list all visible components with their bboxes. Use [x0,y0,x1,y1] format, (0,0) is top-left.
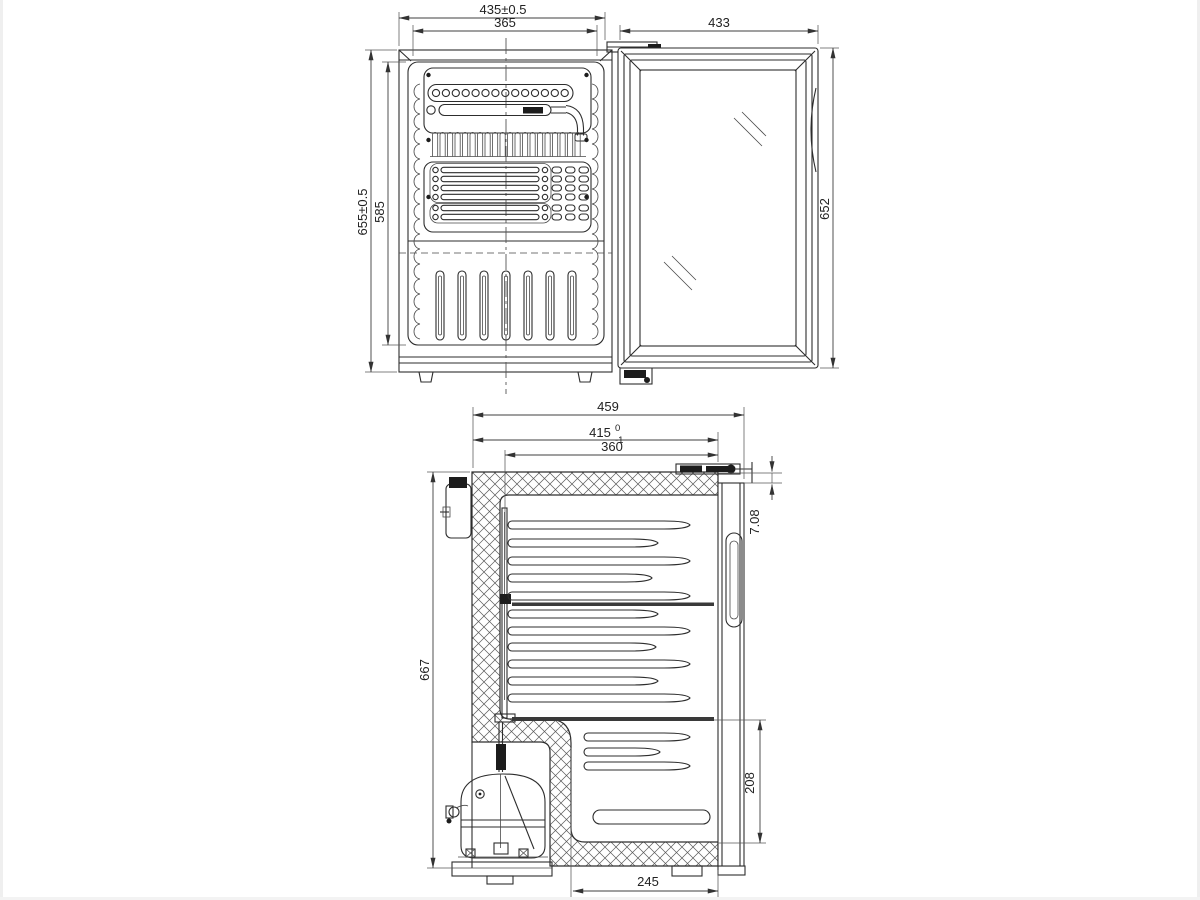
dim-lower-compartment-height: 208 [742,772,757,794]
side-section-group: 459 415 0 -1 360 667 7.08 208 245 [417,399,782,898]
rear-bottom-foot [672,866,702,876]
thermostat-box [440,477,471,538]
dim-rear-panel-width: 365 [494,15,516,30]
filter-dryer [496,744,506,770]
drawing-page: 435±0.5 365 433 655±0.5 585 652 [0,0,1200,900]
door-front-view [618,48,818,368]
rear-view-group: 435±0.5 365 433 655±0.5 585 652 [355,2,839,394]
page-edge-left [0,0,3,900]
rear-feet [419,372,592,382]
compressor [446,774,548,858]
insulation-section [472,472,718,866]
interior-fins [508,521,714,824]
dim-door-top-gap: 7.08 [747,509,762,534]
technical-drawing: 435±0.5 365 433 655±0.5 585 652 [0,0,1200,900]
rear-bottom-hinge [620,366,652,384]
dim-side-body-depth-tol-upper: 0 [615,423,620,434]
door-section [718,483,744,866]
dim-rear-overall-height: 655±0.5 [355,189,370,236]
dim-side-body-depth: 415 [589,425,611,440]
dim-base-recess-depth: 245 [637,874,659,889]
dim-door-height: 652 [817,198,832,220]
dim-door-width: 433 [708,15,730,30]
dim-side-overall-depth: 459 [597,399,619,414]
dim-rear-panel-height: 585 [372,201,387,223]
dim-side-inner-depth: 360 [601,439,623,454]
base-frame [452,862,552,884]
door-outer-frame [618,48,818,368]
dim-side-overall-height: 667 [417,659,432,681]
door-bottom-block [718,866,745,875]
